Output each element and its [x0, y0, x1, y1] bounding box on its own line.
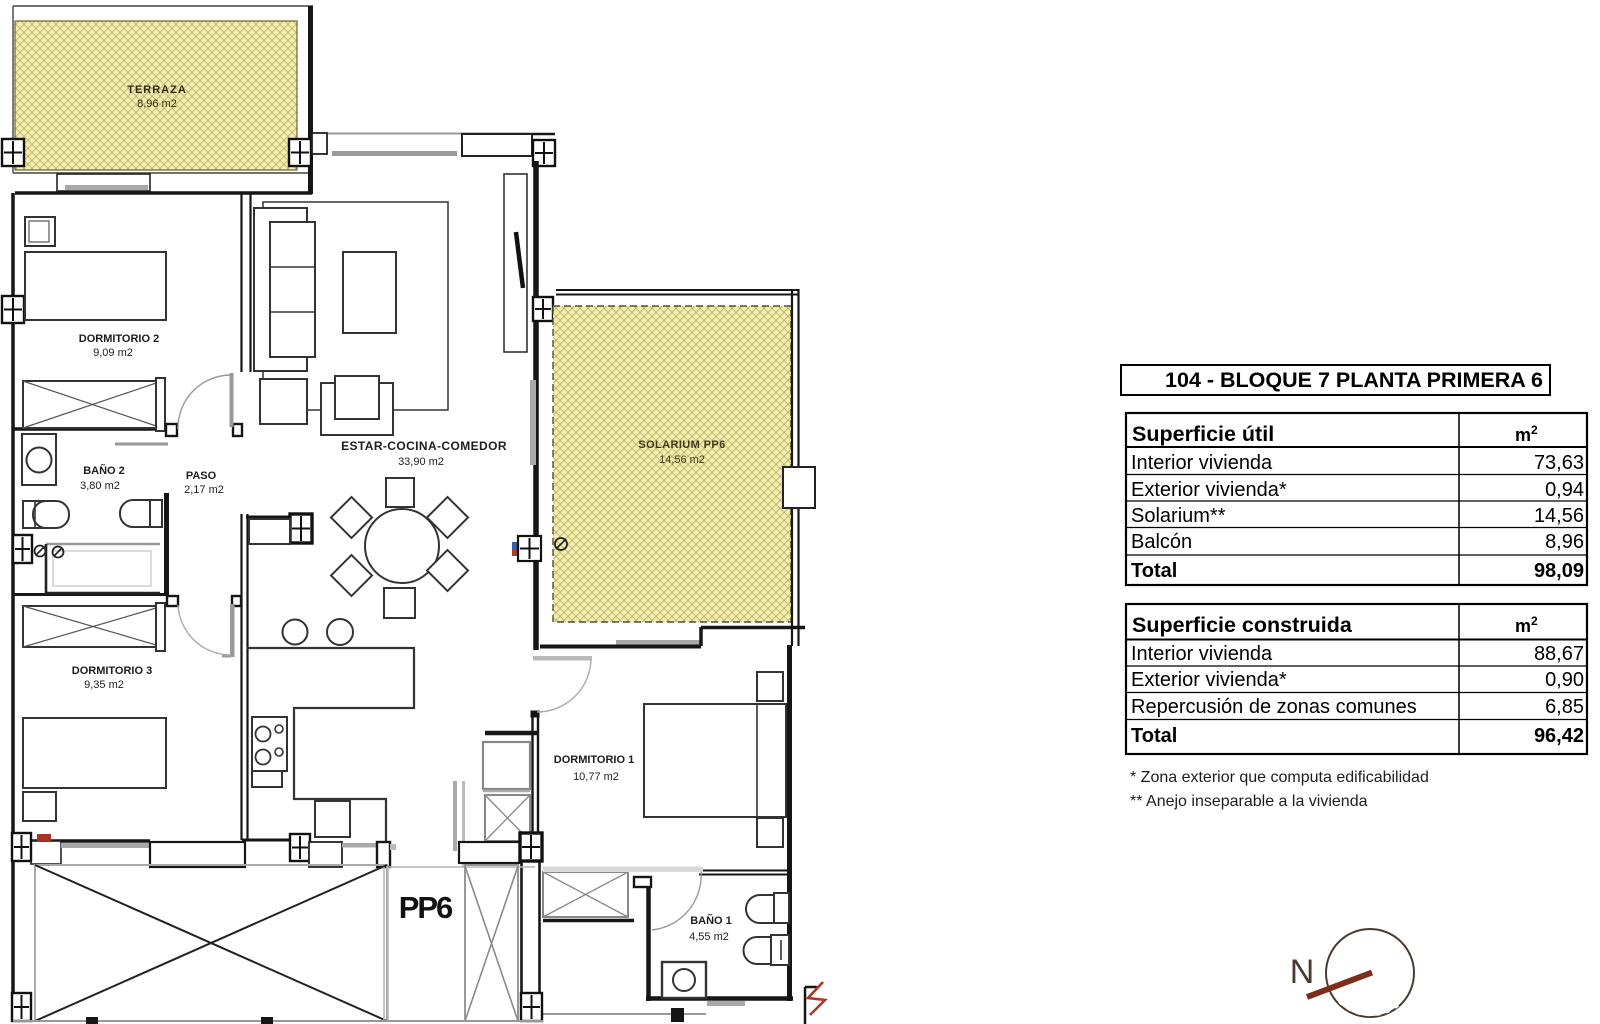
svg-text:6,85: 6,85	[1545, 696, 1584, 718]
svg-text:** Anejo inseparable a la vivi: ** Anejo inseparable a la vivienda	[1130, 793, 1368, 810]
svg-text:3,80 m2: 3,80 m2	[80, 480, 120, 492]
svg-text:9,09 m2: 9,09 m2	[93, 347, 133, 359]
svg-text:33,90 m2: 33,90 m2	[398, 456, 444, 468]
svg-text:10,77 m2: 10,77 m2	[573, 771, 619, 783]
svg-text:ESTAR-COCINA-COMEDOR: ESTAR-COCINA-COMEDOR	[341, 439, 507, 453]
svg-text:Repercusión de zonas comunes: Repercusión de zonas comunes	[1131, 696, 1417, 718]
svg-text:Superficie construida: Superficie construida	[1132, 613, 1353, 637]
svg-text:9,35 m2: 9,35 m2	[84, 679, 124, 691]
svg-text:Interior vivienda: Interior vivienda	[1131, 452, 1273, 474]
svg-text:8,96: 8,96	[1545, 531, 1584, 553]
svg-text:8,96 m2: 8,96 m2	[137, 98, 177, 110]
svg-text:0,90: 0,90	[1545, 669, 1584, 691]
svg-text:TERRAZA: TERRAZA	[127, 84, 187, 96]
svg-text:2,17 m2: 2,17 m2	[184, 484, 224, 496]
svg-text:Exterior vivienda*: Exterior vivienda*	[1131, 669, 1287, 691]
svg-text:N: N	[1290, 953, 1315, 991]
svg-text:SOLARIUM PP6: SOLARIUM PP6	[638, 439, 725, 451]
svg-text:PASO: PASO	[186, 470, 217, 482]
svg-text:73,63: 73,63	[1534, 452, 1584, 474]
svg-text:BAÑO 2: BAÑO 2	[83, 464, 125, 477]
svg-text:Solarium**: Solarium**	[1131, 505, 1226, 527]
svg-text:Interior vivienda: Interior vivienda	[1131, 643, 1273, 665]
svg-text:98,09: 98,09	[1534, 560, 1584, 582]
svg-text:Balcón: Balcón	[1131, 531, 1192, 553]
svg-text:Total: Total	[1131, 560, 1177, 582]
svg-text:104 - BLOQUE 7 PLANTA PRIMERA: 104 - BLOQUE 7 PLANTA PRIMERA 6	[1165, 368, 1543, 392]
svg-text:Exterior vivienda*: Exterior vivienda*	[1131, 479, 1287, 501]
svg-text:88,67: 88,67	[1534, 643, 1584, 665]
svg-text:BAÑO 1: BAÑO 1	[690, 914, 732, 927]
svg-text:14,56 m2: 14,56 m2	[659, 454, 705, 466]
svg-text:0,94: 0,94	[1545, 479, 1584, 501]
svg-text:PP6: PP6	[399, 890, 453, 925]
svg-text:96,42: 96,42	[1534, 725, 1584, 747]
svg-text:DORMITORIO 1: DORMITORIO 1	[554, 754, 634, 766]
svg-text:4,55 m2: 4,55 m2	[689, 931, 729, 943]
svg-text:14,56: 14,56	[1534, 505, 1584, 527]
svg-text:* Zona exterior que computa ed: * Zona exterior que computa edificabilid…	[1130, 769, 1429, 786]
svg-text:Superficie útil: Superficie útil	[1132, 422, 1274, 446]
svg-text:DORMITORIO 2: DORMITORIO 2	[79, 333, 159, 345]
svg-text:Total: Total	[1131, 725, 1177, 747]
svg-text:DORMITORIO 3: DORMITORIO 3	[72, 665, 152, 677]
